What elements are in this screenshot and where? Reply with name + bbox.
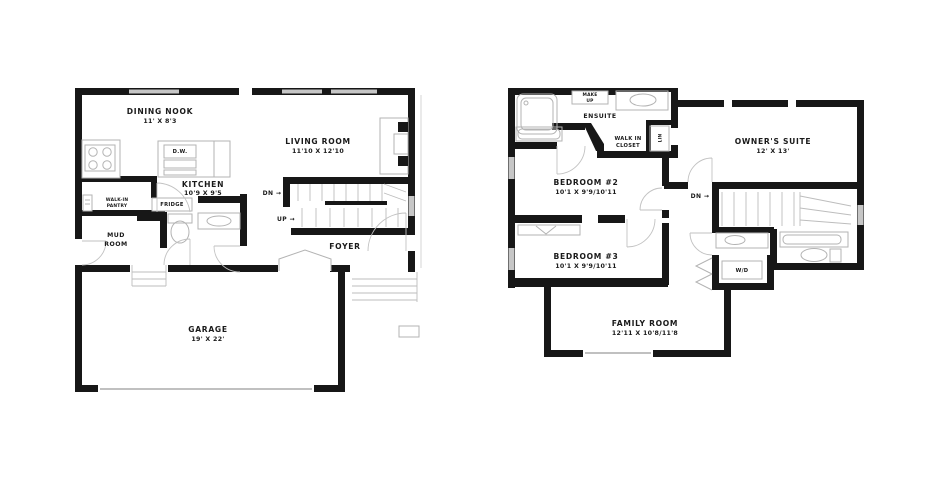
living-room-label: LIVING ROOM: [285, 137, 351, 146]
walk-in-closet-label-line1: WALK IN: [614, 136, 641, 142]
pantry-label-line2: PANTRY: [107, 203, 128, 209]
bath-tub: [780, 232, 848, 247]
first-floor-stairs: [298, 184, 406, 227]
dining-nook-dims: 11' X 8'3: [143, 118, 176, 125]
bedroom3-label: BEDROOM #3: [554, 252, 619, 261]
kitchen-dims: 10'9 X 9'5: [184, 190, 222, 197]
first-floor-labels: DINING NOOK 11' X 8'3 LIVING ROOM 11'10 …: [104, 107, 360, 343]
bath-toilet-bowl: [801, 249, 827, 262]
vanity: [198, 213, 240, 229]
bedroom2-entry-door: [557, 146, 585, 174]
ensuite-label: ENSUITE: [583, 113, 616, 120]
make-up-label-line1: MAKE: [583, 92, 598, 98]
mudroom-hall-door: [164, 239, 190, 265]
shower-inner: [521, 98, 553, 130]
stairs-down-label: DN →: [263, 190, 282, 197]
garage-dims: 19' X 22': [191, 336, 224, 343]
bath-door: [690, 233, 712, 255]
living-room-fireplace: [380, 118, 408, 174]
first-floor-windows: [100, 90, 415, 390]
porch-steps: [352, 272, 417, 302]
closet-rod-chevron: [536, 226, 556, 234]
second-floor-plan: MAKE UP ENSUITE WALK IN CLOSET LIN OWNER…: [508, 88, 864, 357]
sink: [207, 216, 231, 226]
pantry-label-line1: WALK-IN: [106, 197, 129, 203]
counter-segment: [214, 141, 230, 177]
shower-head: [524, 101, 528, 105]
dining-nook-label: DINING NOOK: [127, 107, 194, 116]
fridge-label: FRIDGE: [160, 202, 184, 208]
powder-room-fixtures: [168, 213, 240, 243]
mud-room-label-line1: MUD: [107, 232, 125, 239]
second-floor-stairs: [722, 192, 851, 226]
stairs2-down-label: DN →: [691, 193, 710, 200]
bath-sink: [725, 236, 745, 245]
garage-steps: [132, 265, 166, 286]
bedroom2-door: [640, 188, 662, 210]
floorplan-image: DINING NOOK 11' X 8'3 LIVING ROOM 11'10 …: [0, 0, 930, 500]
family-room-label: FAMILY ROOM: [612, 319, 678, 328]
shower: [517, 94, 557, 134]
first-floor-interior-walls: [75, 176, 415, 248]
bedroom3-door: [627, 219, 655, 247]
bedroom2-label: BEDROOM #2: [554, 178, 619, 187]
laundry-doors: [696, 258, 712, 290]
pantry-door-marker: [83, 195, 92, 211]
floorplan-svg: DINING NOOK 11' X 8'3 LIVING ROOM 11'10 …: [0, 0, 930, 500]
mudroom-exterior-door: [82, 241, 106, 265]
first-floor-plan: DINING NOOK 11' X 8'3 LIVING ROOM 11'10 …: [75, 88, 421, 392]
mud-room-label-line2: ROOM: [104, 241, 127, 248]
owners-suite-door: [688, 158, 712, 182]
porch-pier: [399, 326, 419, 337]
bedroom3-closet: [518, 225, 580, 235]
walk-in-closet-label-line2: CLOSET: [616, 143, 640, 149]
bath-vanity: [716, 233, 768, 248]
bath-toilet-tank: [830, 249, 841, 262]
linen-label: LIN: [658, 134, 664, 143]
second-floor-door-swings: [557, 146, 712, 255]
bedroom2-dims: 10'1 X 9'9/10'11: [555, 189, 617, 196]
dishwasher-label: D.W.: [173, 149, 188, 155]
owners-suite-label: OWNER'S SUITE: [735, 137, 812, 146]
kitchen-island: [158, 141, 214, 177]
toilet-tank: [168, 214, 192, 223]
kitchen-counter: [82, 140, 120, 178]
owners-suite-dims: 12' X 13': [756, 148, 789, 155]
living-room-dims: 11'10 X 12'10: [292, 148, 344, 155]
ensuite-sink: [630, 94, 656, 106]
front-entry-portico: [279, 250, 331, 271]
bath-tub-inner: [783, 235, 841, 244]
washer-dryer-label: W/D: [736, 268, 749, 274]
foyer-label: FOYER: [329, 242, 360, 251]
garage-label: GARAGE: [188, 325, 227, 334]
kitchen-label: KITCHEN: [182, 180, 224, 189]
family-room-dims: 12'11 X 10'8/11'8: [612, 330, 678, 337]
stairs-up-label: UP →: [277, 216, 295, 223]
bedroom3-dims: 10'1 X 9'9/10'11: [555, 263, 617, 270]
toilet-bowl: [171, 221, 189, 243]
make-up-label-line2: UP: [586, 98, 594, 104]
